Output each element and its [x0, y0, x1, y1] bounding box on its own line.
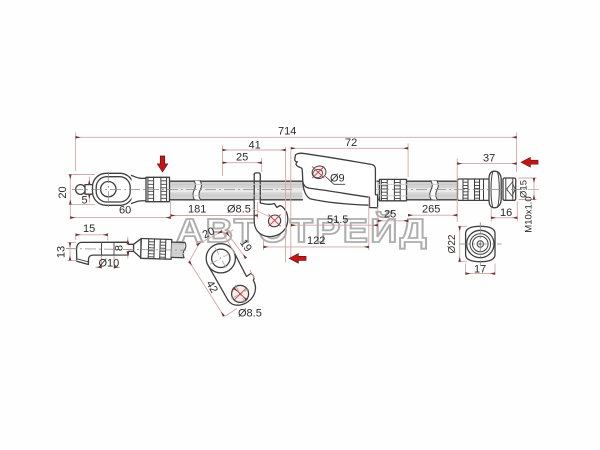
- svg-text:13: 13: [56, 246, 68, 258]
- svg-text:51.5: 51.5: [327, 214, 348, 226]
- svg-text:17: 17: [474, 264, 486, 276]
- svg-text:Ø15: Ø15: [519, 180, 530, 198]
- svg-text:Ø8.5: Ø8.5: [238, 308, 262, 320]
- svg-text:8: 8: [114, 245, 126, 251]
- svg-text:60: 60: [119, 205, 131, 217]
- svg-text:5: 5: [82, 195, 88, 207]
- svg-text:Ø8.5: Ø8.5: [227, 204, 251, 216]
- svg-text:15: 15: [83, 223, 95, 235]
- svg-text:M10x1.0: M10x1.0: [524, 196, 535, 232]
- svg-text:25: 25: [384, 209, 396, 221]
- svg-text:Ø10: Ø10: [99, 258, 120, 270]
- svg-text:25: 25: [236, 151, 248, 163]
- svg-text:181: 181: [188, 204, 206, 216]
- svg-text:37: 37: [483, 152, 495, 164]
- svg-text:714: 714: [278, 126, 296, 138]
- svg-text:41: 41: [249, 139, 261, 151]
- svg-text:16: 16: [500, 207, 512, 219]
- svg-text:72: 72: [345, 137, 357, 149]
- svg-text:20: 20: [57, 186, 69, 198]
- svg-text:122: 122: [307, 235, 325, 247]
- svg-text:Ø22: Ø22: [447, 234, 458, 253]
- svg-text:265: 265: [422, 204, 440, 216]
- svg-text:Ø9: Ø9: [330, 173, 345, 185]
